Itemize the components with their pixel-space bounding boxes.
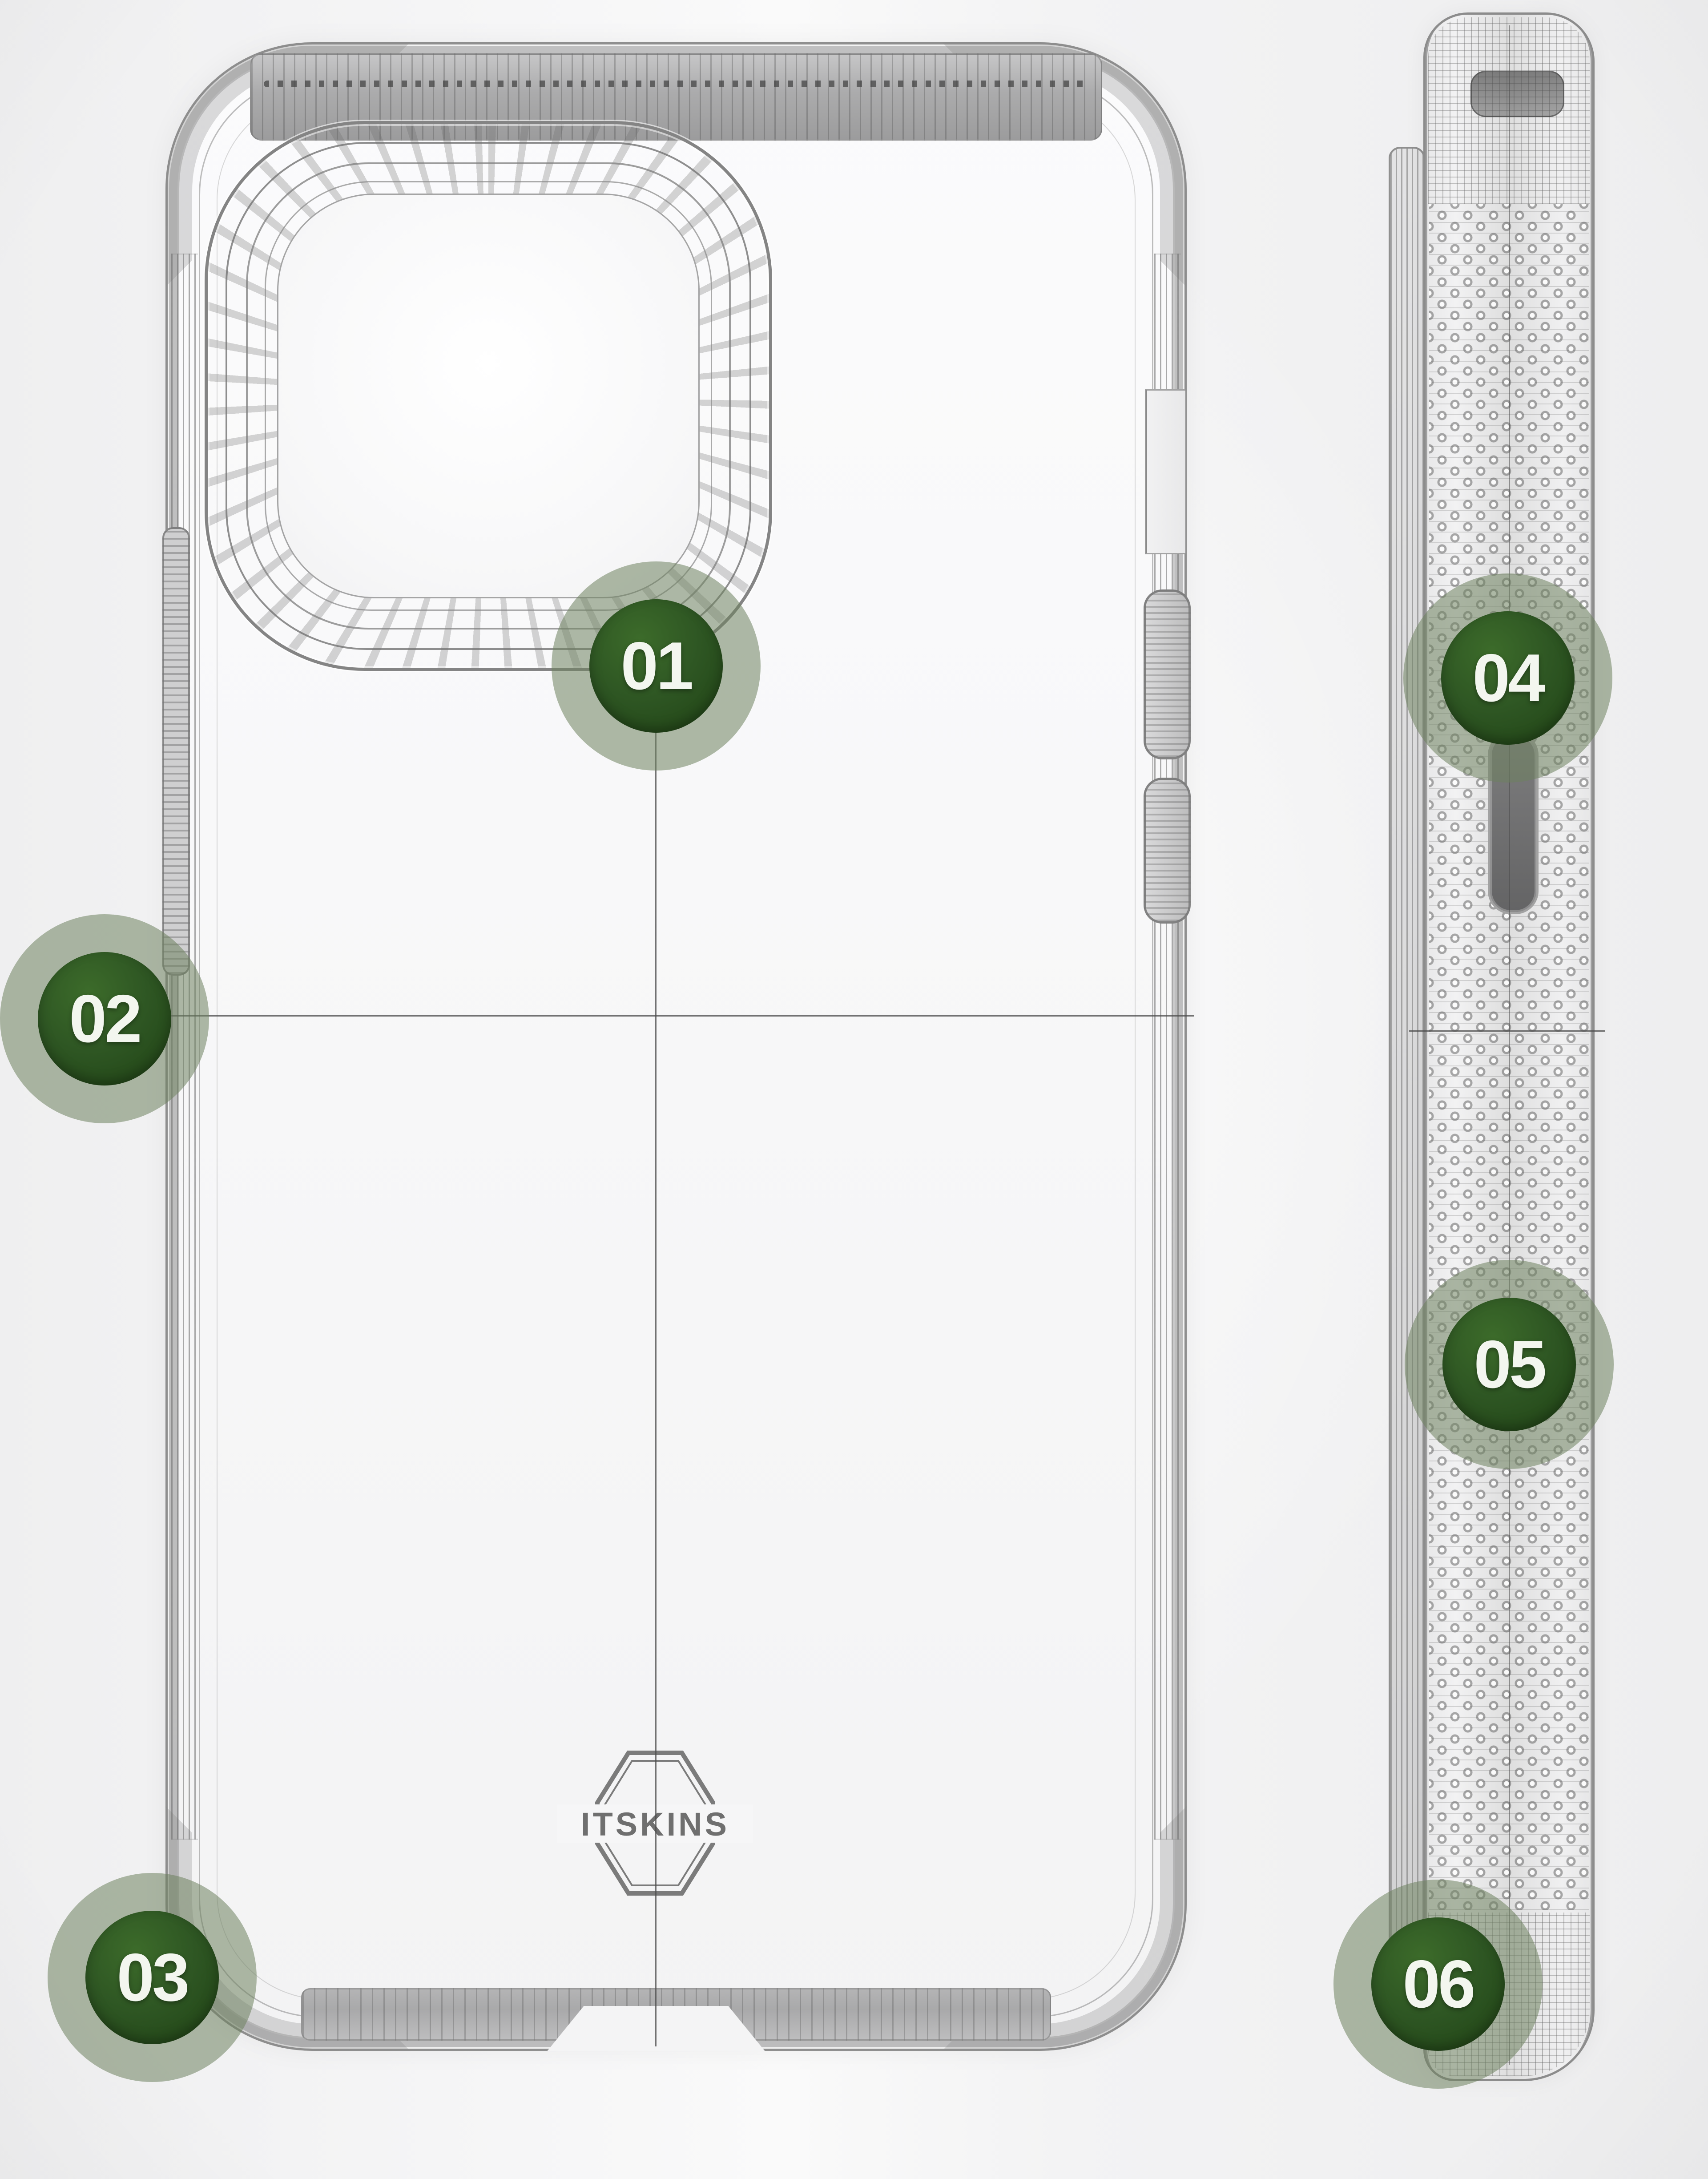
badge-circle: 02: [38, 952, 171, 1085]
side-center-seam-line: [1509, 25, 1510, 2065]
badge-circle: 06: [1371, 1917, 1505, 2051]
badge-circle: 05: [1442, 1298, 1576, 1431]
case-back-view: ITSKINS: [165, 42, 1187, 2051]
badge-number: 01: [620, 632, 691, 700]
volume-button-bottom: [1144, 778, 1191, 924]
callout-badge-05: 05: [1405, 1260, 1614, 1469]
product-diagram-page: { "diagram": { "brand": "ITSKINS", "call…: [0, 0, 1708, 2179]
badge-circle: 03: [85, 1911, 219, 2044]
case-side-view: [1423, 12, 1595, 2081]
badge-number: 05: [1474, 1331, 1544, 1398]
callout-badge-06: 06: [1333, 1880, 1543, 2089]
camera-opening: [277, 194, 700, 598]
badge-number: 04: [1472, 644, 1543, 712]
badge-circle: 01: [589, 599, 723, 733]
badge-number: 03: [117, 1944, 187, 2011]
badge-number: 06: [1402, 1950, 1473, 2018]
side-view-left-rail: [1389, 147, 1425, 1977]
callout-badge-04: 04: [1403, 573, 1612, 783]
badge-number: 02: [69, 985, 140, 1053]
left-edge-button-strip: [162, 527, 190, 976]
volume-button-top: [1144, 589, 1191, 759]
side-speaker-slot: [1470, 71, 1564, 117]
callout-line-horizontal-side: [1409, 1030, 1605, 1032]
badge-circle: 04: [1441, 611, 1575, 745]
callout-line-vertical-back: [655, 667, 657, 2046]
callout-line-horizontal-back: [98, 1015, 1194, 1017]
callout-badge-03: 03: [48, 1873, 257, 2082]
mute-switch-notch: [1145, 389, 1185, 554]
callout-badge-01: 01: [552, 561, 761, 771]
callout-badge-02: 02: [0, 914, 209, 1123]
